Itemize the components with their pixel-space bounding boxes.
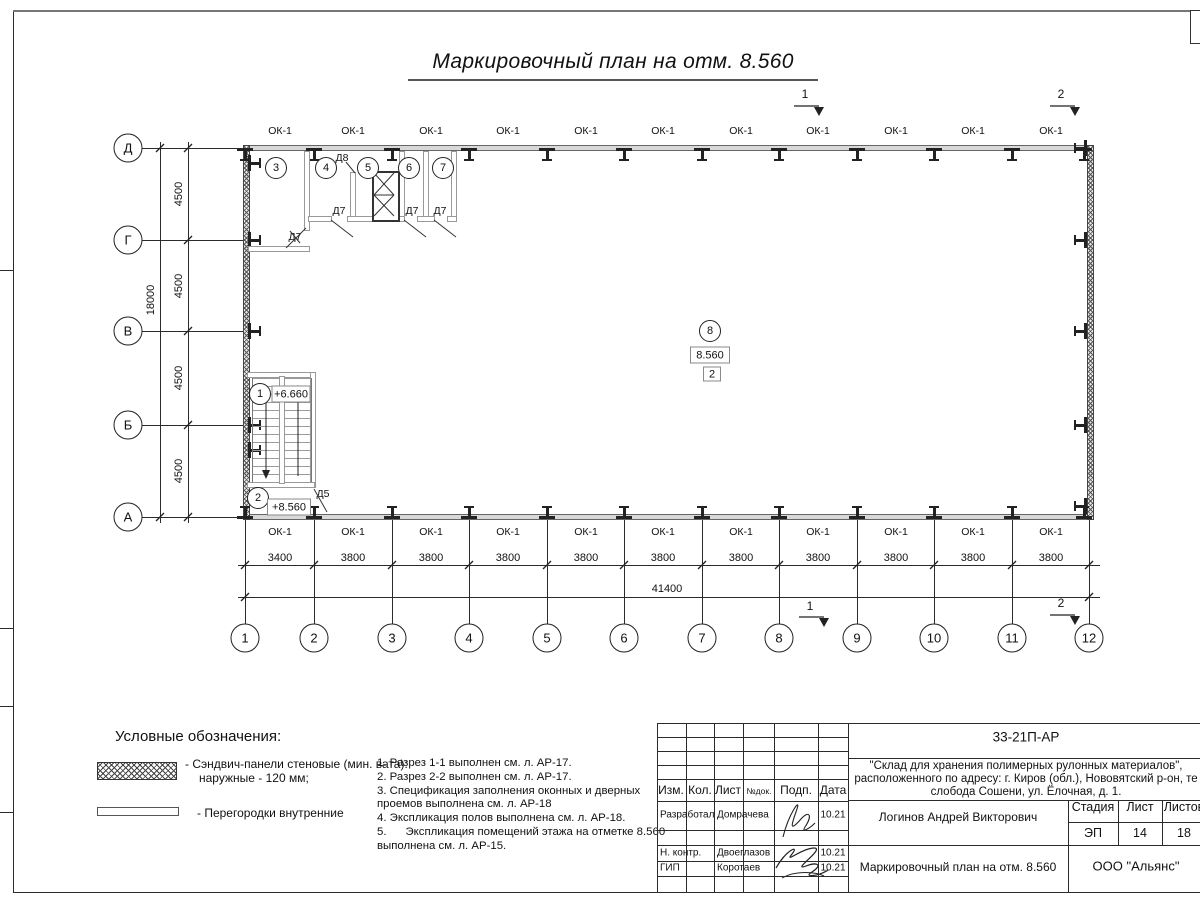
section-mark: 1: [807, 599, 814, 613]
dim-label: 3400: [268, 552, 292, 564]
column-symbol: [461, 148, 477, 164]
corner-stamp-box: [1190, 10, 1200, 44]
axis-bubble: 4: [455, 624, 484, 653]
dim-label: 3800: [341, 552, 365, 564]
column-symbol: [849, 148, 865, 164]
column-symbol: [539, 148, 555, 164]
column-symbol: [1071, 232, 1087, 248]
fold-mark: [0, 628, 13, 629]
window-label: ОК-1: [651, 125, 675, 137]
section-mark: 2: [1058, 596, 1065, 610]
column-symbol: [849, 503, 865, 519]
dim-label: 4500: [173, 366, 185, 390]
door-label: Д5: [317, 488, 330, 500]
stamp-doc-code: 33-21П-АР: [993, 730, 1060, 745]
window-label: ОК-1: [419, 125, 443, 137]
drawing-sheet: { "sheet": { "title": "Маркировочный пла…: [0, 0, 1200, 900]
stamp-line: [1118, 800, 1119, 845]
stamp-name: Двоеглазов: [717, 848, 770, 859]
dim-line: [238, 565, 1100, 566]
column-symbol: [771, 148, 787, 164]
window-label: ОК-1: [496, 526, 520, 538]
window-label: ОК-1: [884, 125, 908, 137]
partition: [423, 151, 429, 220]
elevation-box: +8.560: [267, 499, 311, 516]
axis-line: [469, 520, 470, 624]
note-line: 1. Разрез 1-1 выполнен см. л. АР-17.: [377, 757, 669, 771]
stamp-project: "Склад для хранения полимерных рулонных …: [870, 760, 1183, 772]
room-marker: 5: [357, 157, 379, 179]
window-label: ОК-1: [268, 526, 292, 538]
dim-line: [160, 142, 161, 523]
stamp-stage-value: ЭП: [1084, 826, 1102, 840]
door-label: Д7: [434, 205, 447, 217]
window-label: ОК-1: [806, 125, 830, 137]
column-symbol: [616, 503, 632, 519]
dim-label: 3800: [961, 552, 985, 564]
dim-label: 3800: [1039, 552, 1063, 564]
column-symbol: [616, 148, 632, 164]
window-label: ОК-1: [268, 125, 292, 137]
window-label: ОК-1: [496, 125, 520, 137]
room-marker: 7: [432, 157, 454, 179]
column-symbol: [1071, 498, 1087, 514]
dim-label: 3800: [651, 552, 675, 564]
stamp-line: [657, 723, 1200, 724]
legend-item-text: наружные - 120 мм;: [199, 771, 309, 785]
stamp-line: [818, 723, 819, 893]
column-symbol: [384, 148, 400, 164]
door-label: Д7: [333, 205, 346, 217]
column-symbol: [248, 323, 264, 339]
axis-line: [314, 520, 315, 624]
axis-line: [142, 331, 243, 332]
window-label: ОК-1: [419, 526, 443, 538]
stamp-line: [714, 723, 715, 893]
room-marker: 4: [315, 157, 337, 179]
room-marker: 1: [249, 383, 271, 405]
axis-bubble: А: [114, 503, 143, 532]
dim-label: 41400: [652, 583, 683, 595]
dim-label: 3800: [729, 552, 753, 564]
column-symbol: [926, 503, 942, 519]
axis-bubble: В: [114, 317, 143, 346]
stamp-doc-title: Маркировочный план на отм. 8.560: [860, 860, 1057, 874]
axis-line: [245, 520, 246, 624]
column-symbol: [1004, 503, 1020, 519]
room-marker: 3: [265, 157, 287, 179]
partition-symbol: [97, 807, 179, 816]
dim-label: 3800: [496, 552, 520, 564]
partition: [308, 216, 332, 222]
stamp-project: слобода Сошени, ул. Ёлочная, д. 1.: [931, 786, 1122, 798]
floor-number-box: 2: [703, 367, 721, 382]
axis-line: [1012, 520, 1013, 624]
dim-label: 4500: [173, 182, 185, 206]
legend-heading: Условные обозначения:: [115, 728, 281, 745]
window-label: ОК-1: [1039, 125, 1063, 137]
door-label: Д8: [336, 152, 349, 164]
window-label: ОК-1: [574, 125, 598, 137]
stamp-sheet-label: Лист: [1126, 800, 1153, 814]
stamp-col-header: Подп.: [780, 783, 812, 797]
note-line: 2. Разрез 2-2 выполнен см. л. АР-17.: [377, 771, 669, 785]
axis-line: [142, 240, 243, 241]
axis-bubble: 8: [765, 624, 794, 653]
stamp-col-header: №док.: [747, 786, 772, 796]
room-marker: 2: [247, 487, 269, 509]
stamp-date: 10.21: [820, 810, 845, 821]
stamp-name: Домрачева: [717, 810, 769, 821]
page-title: Маркировочный план на отм. 8.560: [408, 50, 818, 81]
dim-line: [238, 597, 1100, 598]
axis-bubble: Б: [114, 411, 143, 440]
axis-bubble: 11: [998, 624, 1027, 653]
partition: [350, 172, 356, 220]
axis-line: [624, 520, 625, 624]
stamp-role: ГИП: [660, 863, 680, 874]
window-label: ОК-1: [1039, 526, 1063, 538]
stamp-sheets-label: Листов: [1164, 800, 1200, 814]
dim-label: 3800: [884, 552, 908, 564]
fold-mark: [0, 706, 13, 707]
dim-label: 18000: [145, 285, 157, 316]
window-label: ОК-1: [729, 125, 753, 137]
axis-bubble: 5: [533, 624, 562, 653]
wall-bottom: [243, 514, 1094, 520]
note-line: 4. Экспликация полов выполнена см. л. АР…: [377, 812, 669, 826]
axis-bubble: 3: [378, 624, 407, 653]
axis-line: [934, 520, 935, 624]
frame-top: [13, 10, 1200, 12]
signature: [775, 795, 820, 845]
section-mark: 2: [1058, 87, 1065, 101]
dim-label: 4500: [173, 274, 185, 298]
axis-line: [392, 520, 393, 624]
fold-mark: [0, 812, 13, 813]
dim-line: [188, 142, 189, 523]
door-label: Д7: [289, 231, 302, 243]
room-marker: 6: [398, 157, 420, 179]
stamp-date: 10.21: [820, 863, 845, 874]
stamp-sheets-value: 18: [1177, 826, 1191, 840]
fold-mark: [0, 270, 13, 271]
partition: [417, 216, 435, 222]
elevation-box: 8.560: [690, 347, 730, 364]
stamp-line: [686, 723, 687, 893]
stamp-stage-label: Стадия: [1072, 800, 1115, 814]
column-symbol: [461, 503, 477, 519]
stamp-sheet-value: 14: [1133, 826, 1147, 840]
stamp-role: Н. контр.: [660, 848, 701, 859]
room-marker: 8: [699, 320, 721, 342]
dim-label: 4500: [173, 459, 185, 483]
door-label: Д7: [406, 205, 419, 217]
axis-line: [702, 520, 703, 624]
stamp-line: [1068, 800, 1069, 893]
frame-left: [13, 10, 14, 893]
stamp-project: расположенного по адресу: г. Киров (обл.…: [854, 773, 1197, 785]
window-label: ОК-1: [341, 526, 365, 538]
window-label: ОК-1: [961, 125, 985, 137]
axis-line: [142, 148, 243, 149]
axis-line: [779, 520, 780, 624]
dim-label: 3800: [419, 552, 443, 564]
axis-bubble: 9: [843, 624, 872, 653]
axis-bubble: 12: [1075, 624, 1104, 653]
axis-line: [142, 517, 243, 518]
column-symbol: [248, 155, 264, 171]
window-label: ОК-1: [341, 125, 365, 137]
legend-item-text: - Перегородки внутренние: [197, 806, 344, 820]
stamp-col-header: Изм.: [658, 783, 684, 797]
axis-bubble: 10: [920, 624, 949, 653]
partition: [248, 246, 310, 252]
partition: [447, 216, 457, 222]
stamp-col-header: Кол.: [688, 783, 712, 797]
axis-line: [1089, 520, 1090, 624]
legend-item-text: - Сэндвич-панели стеновые (мин. вата):: [185, 757, 408, 771]
stamp-line: [657, 723, 658, 893]
axis-bubble: 1: [231, 624, 260, 653]
elevation-box: +6.660: [272, 386, 311, 403]
notes-block: 1. Разрез 1-1 выполнен см. л. АР-17. 2. …: [377, 757, 669, 854]
window-label: ОК-1: [574, 526, 598, 538]
note-line: 3. Спецификация заполнения оконных и две…: [377, 785, 669, 813]
window-label: ОК-1: [729, 526, 753, 538]
stamp-line: [657, 845, 1200, 846]
axis-bubble: 6: [610, 624, 639, 653]
window-label: ОК-1: [651, 526, 675, 538]
stamp-role: Разработал: [660, 810, 714, 821]
column-symbol: [1004, 148, 1020, 164]
sandwich-panel-symbol: [97, 762, 177, 780]
stamp-col-header: Дата: [820, 783, 847, 797]
column-symbol: [1071, 140, 1087, 156]
stamp-line: [1068, 822, 1200, 823]
axis-bubble: Д: [114, 134, 143, 163]
axis-line: [142, 425, 243, 426]
column-symbol: [771, 503, 787, 519]
axis-line: [857, 520, 858, 624]
dim-label: 3800: [806, 552, 830, 564]
shaft: [372, 171, 400, 222]
axis-bubble: 7: [688, 624, 717, 653]
window-label: ОК-1: [806, 526, 830, 538]
stamp-line: [848, 758, 1200, 759]
stamp-name: Коротаев: [717, 863, 760, 874]
wall-top: [243, 145, 1094, 151]
column-symbol: [384, 503, 400, 519]
column-symbol: [694, 503, 710, 519]
column-symbol: [539, 503, 555, 519]
wall-right: [1087, 145, 1094, 520]
window-label: ОК-1: [961, 526, 985, 538]
axis-line: [547, 520, 548, 624]
stamp-date: 10.21: [820, 848, 845, 859]
section-arrows: [794, 106, 1080, 627]
dim-label: 3800: [574, 552, 598, 564]
stamp-line: [774, 723, 775, 893]
stamp-line: [848, 723, 849, 893]
section-mark: 1: [802, 87, 809, 101]
column-symbol: [926, 148, 942, 164]
stamp-col-header: Лист: [715, 783, 741, 797]
column-symbol: [694, 148, 710, 164]
window-label: ОК-1: [884, 526, 908, 538]
axis-bubble: Г: [114, 226, 143, 255]
stamp-company: ООО "Альянс": [1093, 859, 1180, 874]
column-symbol: [1071, 417, 1087, 433]
frame-bottom: [13, 892, 1200, 893]
axis-bubble: 2: [300, 624, 329, 653]
column-symbol: [1071, 323, 1087, 339]
note-line: 5. Экспликация помещений этажа на отметк…: [377, 826, 669, 854]
stamp-author: Логинов Андрей Викторович: [879, 810, 1037, 824]
